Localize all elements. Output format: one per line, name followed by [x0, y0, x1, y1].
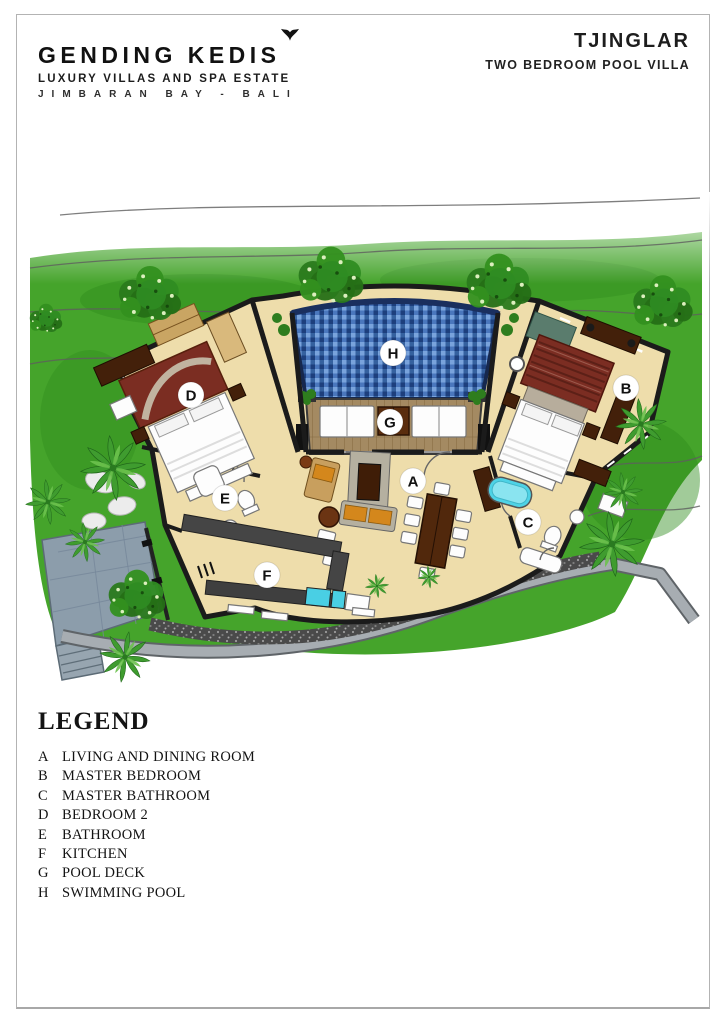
legend-item-label: MASTER BEDROOM [62, 768, 201, 784]
legend-item-b: BMASTER BEDROOM [38, 767, 255, 786]
svg-text:G: G [384, 415, 396, 432]
villa-name: TJINGLAR [485, 30, 690, 53]
room-label-b: B [613, 375, 639, 401]
legend-item-a: ALIVING AND DINING ROOM [38, 748, 255, 767]
room-label-g: G [377, 409, 403, 435]
room-label-e: E [212, 485, 238, 511]
svg-text:C: C [523, 515, 534, 532]
legend-item-key: A [38, 748, 62, 767]
svg-text:B: B [621, 381, 632, 398]
sun-lounger [412, 406, 466, 437]
room-label-a: A [400, 468, 426, 494]
legend-item-key: C [38, 787, 62, 806]
side-table [510, 357, 524, 371]
legend-item-g: GPOOL DECK [38, 864, 255, 883]
brand-name: GENDING KEDIS [38, 42, 298, 69]
legend-item-key: H [38, 884, 62, 903]
legend: LEGEND ALIVING AND DINING ROOMBMASTER BE… [38, 708, 255, 903]
legend-item-key: B [38, 767, 62, 786]
legend-item-key: D [38, 806, 62, 825]
svg-text:F: F [262, 568, 271, 585]
brand-logo: GENDING KEDIS LUXURY VILLAS AND SPA ESTA… [38, 42, 298, 100]
brand-tagline: LUXURY VILLAS AND SPA ESTATE [38, 73, 298, 85]
svg-text:D: D [186, 388, 197, 405]
legend-item-key: E [38, 826, 62, 845]
legend-item-label: BATHROOM [62, 827, 146, 843]
kitchen-sink [305, 588, 346, 609]
room-label-f: F [254, 562, 280, 588]
room-label-h: H [380, 340, 406, 366]
legend-item-label: MASTER BATHROOM [62, 788, 210, 804]
legend-item-label: KITCHEN [62, 846, 128, 862]
legend-item-key: F [38, 845, 62, 864]
svg-text:H: H [388, 346, 399, 363]
legend-item-key: G [38, 864, 62, 883]
legend-item-c: CMASTER BATHROOM [38, 787, 255, 806]
legend-item-h: HSWIMMING POOL [38, 884, 255, 903]
legend-item-label: BEDROOM 2 [62, 807, 148, 823]
svg-text:E: E [220, 491, 230, 508]
brand-location: JIMBARAN BAY - BALI [38, 89, 298, 100]
legend-item-e: EBATHROOM [38, 826, 255, 845]
legend-item-label: SWIMMING POOL [62, 885, 186, 901]
room-label-c: C [515, 509, 541, 535]
legend-item-label: POOL DECK [62, 865, 145, 881]
legend-heading: LEGEND [38, 708, 255, 736]
villa-title: TJINGLAR TWO BEDROOM POOL VILLA [485, 30, 690, 72]
legend-item-d: DBEDROOM 2 [38, 806, 255, 825]
bird-icon [281, 27, 299, 47]
svg-text:A: A [408, 474, 419, 491]
sun-lounger [320, 406, 374, 437]
legend-item-f: FKITCHEN [38, 845, 255, 864]
legend-items: ALIVING AND DINING ROOMBMASTER BEDROOMCM… [38, 748, 255, 903]
legend-item-label: LIVING AND DINING ROOM [62, 749, 255, 765]
villa-type: TWO BEDROOM POOL VILLA [485, 58, 690, 72]
room-label-d: D [178, 382, 204, 408]
